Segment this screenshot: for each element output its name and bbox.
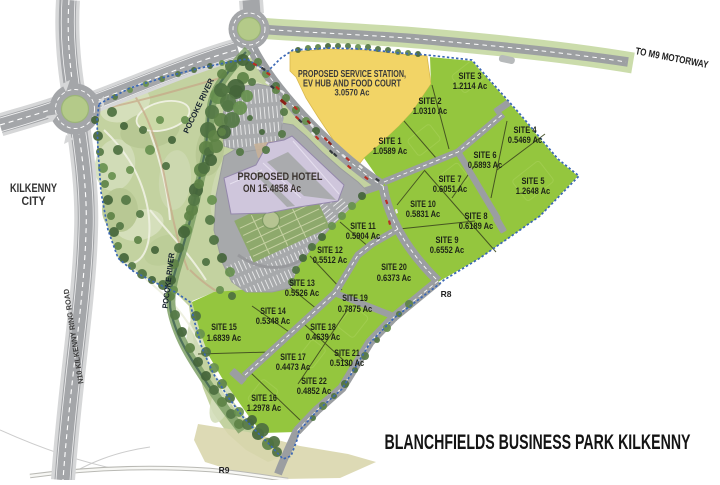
- svg-text:1.0589 Ac: 1.0589 Ac: [373, 146, 408, 156]
- svg-text:R9: R9: [219, 465, 230, 475]
- svg-text:0.4639 Ac: 0.4639 Ac: [306, 332, 341, 342]
- svg-text:SITE 2: SITE 2: [419, 95, 442, 106]
- svg-text:0.5831 Ac: 0.5831 Ac: [406, 209, 441, 219]
- svg-text:SITE 13: SITE 13: [289, 277, 315, 288]
- svg-text:SITE 12: SITE 12: [317, 244, 343, 255]
- svg-text:PROPOSED HOTEL: PROPOSED HOTEL: [238, 171, 323, 183]
- svg-text:CITY: CITY: [22, 196, 46, 208]
- svg-text:0.7875 Ac: 0.7875 Ac: [338, 304, 373, 314]
- svg-text:SITE 3: SITE 3: [459, 70, 482, 81]
- svg-text:0.4852 Ac: 0.4852 Ac: [297, 386, 332, 396]
- svg-text:0.5512 Ac: 0.5512 Ac: [313, 255, 348, 265]
- svg-text:1.2648 Ac: 1.2648 Ac: [516, 186, 551, 196]
- svg-text:SITE 21: SITE 21: [334, 347, 360, 358]
- svg-text:1.2114 Ac: 1.2114 Ac: [453, 81, 488, 91]
- svg-text:1.6839 Ac: 1.6839 Ac: [207, 333, 242, 343]
- svg-text:SITE 17: SITE 17: [280, 351, 306, 362]
- svg-text:0.6189 Ac: 0.6189 Ac: [459, 221, 494, 231]
- svg-text:SITE 6: SITE 6: [474, 149, 497, 160]
- svg-text:SITE 4: SITE 4: [514, 124, 538, 135]
- svg-text:0.4473 Ac: 0.4473 Ac: [276, 362, 311, 372]
- svg-text:0.5469 Ac: 0.5469 Ac: [508, 135, 543, 145]
- svg-text:SITE 9: SITE 9: [436, 234, 459, 245]
- svg-text:0.6373 Ac: 0.6373 Ac: [377, 273, 412, 283]
- svg-text:ON 15.4858 Ac: ON 15.4858 Ac: [243, 183, 301, 195]
- svg-text:0.5348 Ac: 0.5348 Ac: [256, 316, 291, 326]
- svg-text:SITE 7: SITE 7: [439, 173, 462, 184]
- svg-text:SITE 10: SITE 10: [410, 198, 436, 209]
- svg-text:SITE 22: SITE 22: [301, 375, 327, 386]
- svg-text:SITE 18: SITE 18: [310, 321, 336, 332]
- svg-text:0.5526 Ac: 0.5526 Ac: [285, 288, 320, 298]
- svg-text:0.6552 Ac: 0.6552 Ac: [430, 245, 465, 255]
- svg-text:KILKENNY: KILKENNY: [10, 183, 57, 195]
- svg-text:SITE 16: SITE 16: [251, 392, 277, 403]
- svg-text:0.5904 Ac: 0.5904 Ac: [346, 231, 381, 241]
- svg-text:3.0570 Ac: 3.0570 Ac: [335, 87, 370, 98]
- svg-text:SITE 20: SITE 20: [381, 261, 407, 272]
- svg-text:0.6051 Ac: 0.6051 Ac: [433, 184, 468, 194]
- svg-text:1.0310 Ac: 1.0310 Ac: [413, 106, 448, 116]
- svg-text:BLANCHFIELDS BUSINESS PARK KIL: BLANCHFIELDS BUSINESS PARK KILKENNY: [385, 431, 691, 454]
- svg-text:SITE 5: SITE 5: [522, 175, 545, 186]
- svg-text:SITE 11: SITE 11: [350, 220, 376, 231]
- svg-text:0.5130 Ac: 0.5130 Ac: [330, 358, 365, 368]
- svg-text:SITE 1: SITE 1: [379, 135, 402, 146]
- svg-text:SITE 8: SITE 8: [465, 210, 488, 221]
- svg-text:SITE 19: SITE 19: [342, 292, 368, 303]
- svg-text:SITE 15: SITE 15: [211, 321, 237, 332]
- svg-text:1.2978 Ac: 1.2978 Ac: [247, 403, 282, 413]
- svg-text:0.5893 Ac: 0.5893 Ac: [468, 160, 503, 170]
- svg-text:R8: R8: [441, 289, 452, 299]
- svg-text:SITE 14: SITE 14: [260, 305, 286, 316]
